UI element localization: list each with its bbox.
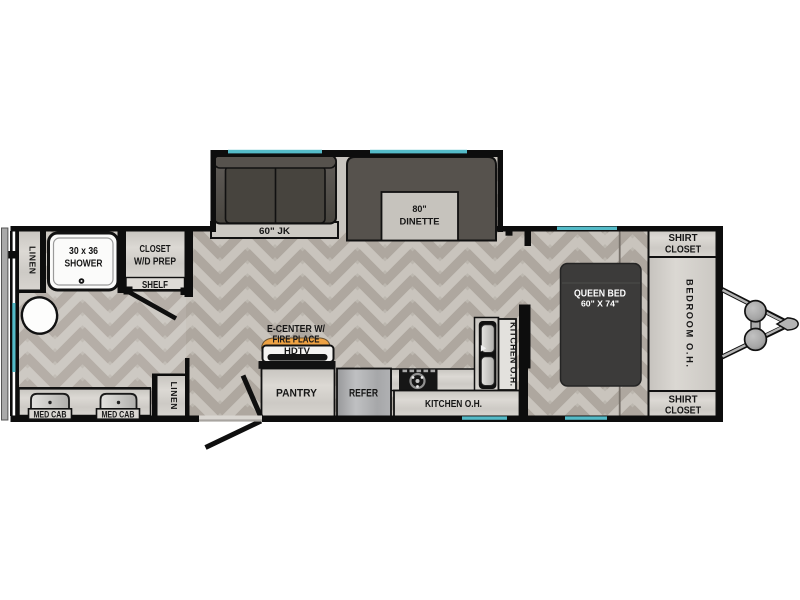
svg-text:W/D PREP: W/D PREP xyxy=(134,257,176,268)
svg-text:KITCHEN O.H.: KITCHEN O.H. xyxy=(509,322,519,386)
svg-text:QUEEN BED: QUEEN BED xyxy=(574,289,626,300)
svg-text:REFER: REFER xyxy=(349,388,378,400)
svg-text:CLOSET: CLOSET xyxy=(665,245,701,256)
svg-text:CLOSET: CLOSET xyxy=(140,244,171,255)
svg-text:KITCHEN O.H.: KITCHEN O.H. xyxy=(425,399,482,410)
svg-text:LINEN: LINEN xyxy=(169,382,179,410)
svg-text:CLOSET: CLOSET xyxy=(665,406,701,417)
svg-text:MED CAB: MED CAB xyxy=(102,410,135,420)
svg-text:MED CAB: MED CAB xyxy=(34,410,67,420)
svg-text:PANTRY: PANTRY xyxy=(276,388,318,400)
svg-text:DINETTE: DINETTE xyxy=(400,217,440,227)
svg-text:LINEN: LINEN xyxy=(28,246,38,274)
svg-text:SHIRT: SHIRT xyxy=(669,395,698,406)
svg-text:SHELF: SHELF xyxy=(142,280,168,291)
svg-text:SHOWER: SHOWER xyxy=(65,259,104,270)
svg-text:HDTV: HDTV xyxy=(284,346,311,357)
svg-text:30 x 36: 30 x 36 xyxy=(69,246,98,257)
svg-text:60" X 74": 60" X 74" xyxy=(581,300,619,309)
svg-text:SHIRT: SHIRT xyxy=(669,233,698,244)
svg-text:80": 80" xyxy=(412,204,426,214)
svg-text:60" JK: 60" JK xyxy=(259,226,291,236)
svg-text:FIRE PLACE: FIRE PLACE xyxy=(273,334,320,346)
svg-text:BEDROOM O.H.: BEDROOM O.H. xyxy=(685,279,695,367)
